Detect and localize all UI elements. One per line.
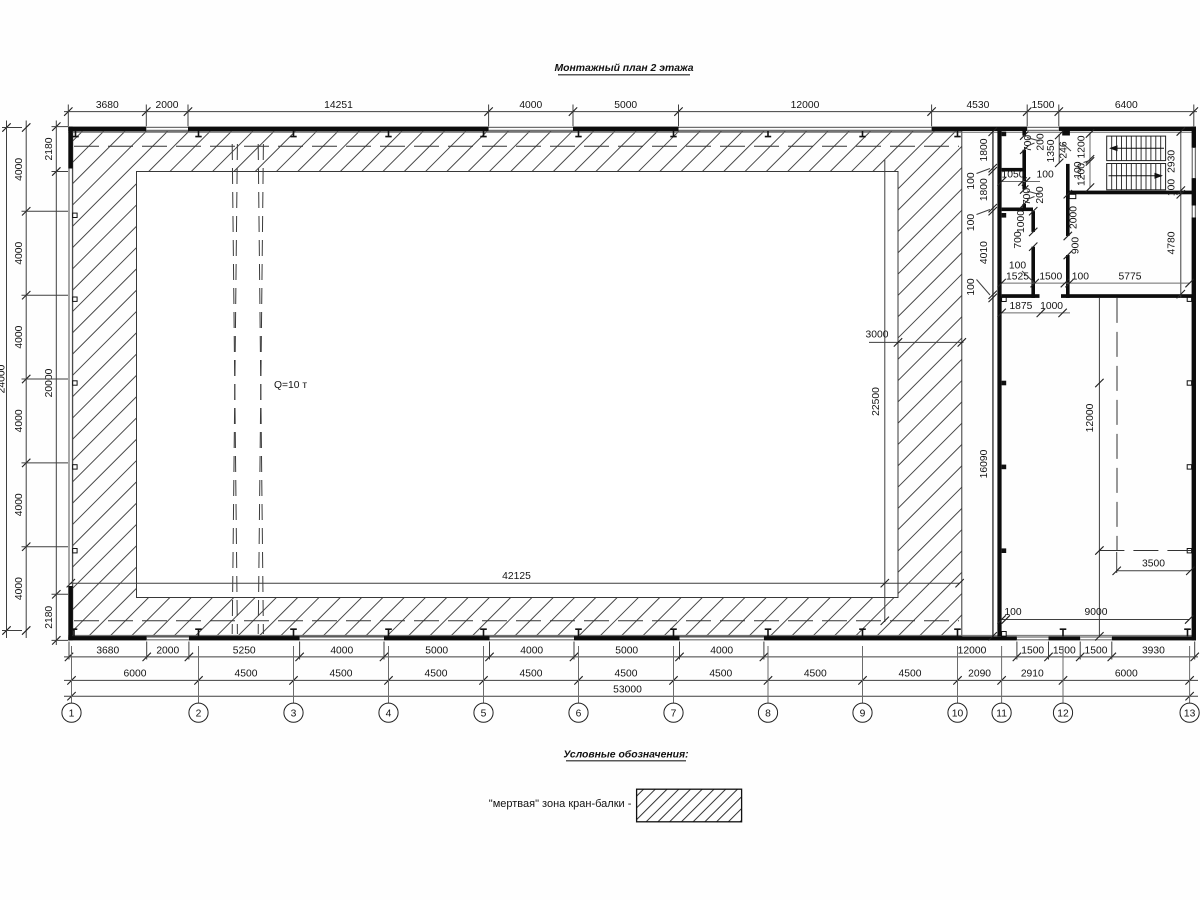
svg-text:16090: 16090 <box>979 449 990 478</box>
svg-text:2000: 2000 <box>156 645 179 656</box>
svg-text:100: 100 <box>1009 260 1026 271</box>
svg-text:4010: 4010 <box>979 241 990 264</box>
svg-text:4000: 4000 <box>14 409 25 432</box>
svg-text:22500: 22500 <box>871 387 882 416</box>
svg-text:100: 100 <box>966 172 977 189</box>
svg-text:42125: 42125 <box>502 571 531 582</box>
svg-text:12000: 12000 <box>1085 403 1096 432</box>
svg-text:2000: 2000 <box>1068 206 1079 229</box>
svg-text:9000: 9000 <box>1085 607 1108 618</box>
svg-text:100: 100 <box>966 214 977 231</box>
svg-text:4500: 4500 <box>615 669 638 680</box>
svg-text:5250: 5250 <box>233 645 256 656</box>
svg-text:4000: 4000 <box>14 325 25 348</box>
svg-text:4000: 4000 <box>520 645 543 656</box>
svg-text:1500: 1500 <box>1053 645 1076 656</box>
svg-text:246: 246 <box>1059 141 1070 158</box>
svg-text:4500: 4500 <box>899 669 922 680</box>
svg-text:"мертвая" зона кран-балки -: "мертвая" зона кран-балки - <box>489 798 632 810</box>
svg-text:1875: 1875 <box>1009 301 1032 312</box>
svg-text:1000: 1000 <box>1016 210 1027 233</box>
svg-text:24000: 24000 <box>0 364 8 393</box>
svg-text:1350: 1350 <box>1046 139 1057 162</box>
svg-text:4500: 4500 <box>804 669 827 680</box>
svg-text:4780: 4780 <box>1167 231 1178 254</box>
svg-text:1500: 1500 <box>1032 100 1055 111</box>
svg-text:100: 100 <box>1072 272 1089 283</box>
svg-text:12: 12 <box>1057 709 1069 720</box>
svg-text:5000: 5000 <box>614 100 637 111</box>
svg-text:2090: 2090 <box>968 669 991 680</box>
svg-text:3000: 3000 <box>866 330 889 341</box>
svg-text:1800: 1800 <box>979 138 990 161</box>
svg-text:3930: 3930 <box>1142 645 1165 656</box>
svg-text:4530: 4530 <box>966 100 989 111</box>
svg-text:7: 7 <box>671 709 677 720</box>
svg-text:1200: 1200 <box>1076 135 1087 158</box>
svg-text:1000: 1000 <box>1040 301 1063 312</box>
svg-text:12000: 12000 <box>958 645 987 656</box>
svg-text:4000: 4000 <box>710 645 733 656</box>
svg-text:1800: 1800 <box>979 178 990 201</box>
svg-text:1500: 1500 <box>1085 645 1108 656</box>
svg-text:Монтажный план 2 этажа: Монтажный план 2 этажа <box>554 63 693 74</box>
svg-text:5: 5 <box>481 709 487 720</box>
svg-text:700: 700 <box>1013 231 1024 248</box>
svg-text:5775: 5775 <box>1119 272 1142 283</box>
svg-text:14251: 14251 <box>324 100 353 111</box>
svg-text:12000: 12000 <box>791 100 820 111</box>
svg-text:1050: 1050 <box>1002 170 1025 181</box>
svg-text:6000: 6000 <box>124 669 147 680</box>
svg-text:4000: 4000 <box>330 645 353 656</box>
svg-text:3680: 3680 <box>96 100 119 111</box>
svg-text:4000: 4000 <box>14 493 25 516</box>
svg-text:4500: 4500 <box>709 669 732 680</box>
svg-text:4000: 4000 <box>519 100 542 111</box>
svg-text:2930: 2930 <box>1166 150 1177 173</box>
svg-text:4000: 4000 <box>14 241 25 264</box>
svg-text:100: 100 <box>1037 170 1054 181</box>
svg-text:9: 9 <box>860 709 866 720</box>
svg-text:2910: 2910 <box>1021 669 1044 680</box>
svg-text:3680: 3680 <box>96 645 119 656</box>
svg-text:5000: 5000 <box>615 645 638 656</box>
svg-text:1500: 1500 <box>1039 271 1062 282</box>
svg-text:4500: 4500 <box>235 669 258 680</box>
svg-text:6400: 6400 <box>1115 100 1138 111</box>
svg-text:100: 100 <box>966 278 977 295</box>
svg-text:1525: 1525 <box>1006 271 1029 282</box>
svg-text:Q=10 т: Q=10 т <box>274 380 307 391</box>
svg-text:2180: 2180 <box>44 137 55 160</box>
svg-text:4000: 4000 <box>14 158 25 181</box>
svg-text:1500: 1500 <box>1021 645 1044 656</box>
svg-text:1: 1 <box>69 709 75 720</box>
svg-text:10: 10 <box>952 709 964 720</box>
svg-text:4000: 4000 <box>14 577 25 600</box>
svg-text:8: 8 <box>765 709 771 720</box>
svg-text:5000: 5000 <box>425 645 448 656</box>
svg-text:2: 2 <box>196 709 202 720</box>
svg-text:53000: 53000 <box>613 685 642 696</box>
svg-text:4500: 4500 <box>425 669 448 680</box>
svg-text:20000: 20000 <box>44 368 55 397</box>
svg-text:Условные обозначения:: Условные обозначения: <box>563 748 688 760</box>
svg-text:4500: 4500 <box>330 669 353 680</box>
svg-text:13: 13 <box>1184 709 1196 720</box>
svg-text:6000: 6000 <box>1115 669 1138 680</box>
svg-text:100: 100 <box>1166 179 1177 196</box>
svg-text:2000: 2000 <box>156 100 179 111</box>
svg-text:2180: 2180 <box>44 606 55 629</box>
svg-text:6: 6 <box>576 709 582 720</box>
svg-text:4: 4 <box>386 709 392 720</box>
svg-text:100: 100 <box>1004 607 1021 618</box>
svg-text:3500: 3500 <box>1142 558 1165 569</box>
svg-text:100: 100 <box>1073 161 1084 178</box>
svg-text:3: 3 <box>291 709 297 720</box>
svg-text:200: 200 <box>1035 186 1046 203</box>
svg-text:4500: 4500 <box>520 669 543 680</box>
svg-text:11: 11 <box>996 709 1007 720</box>
